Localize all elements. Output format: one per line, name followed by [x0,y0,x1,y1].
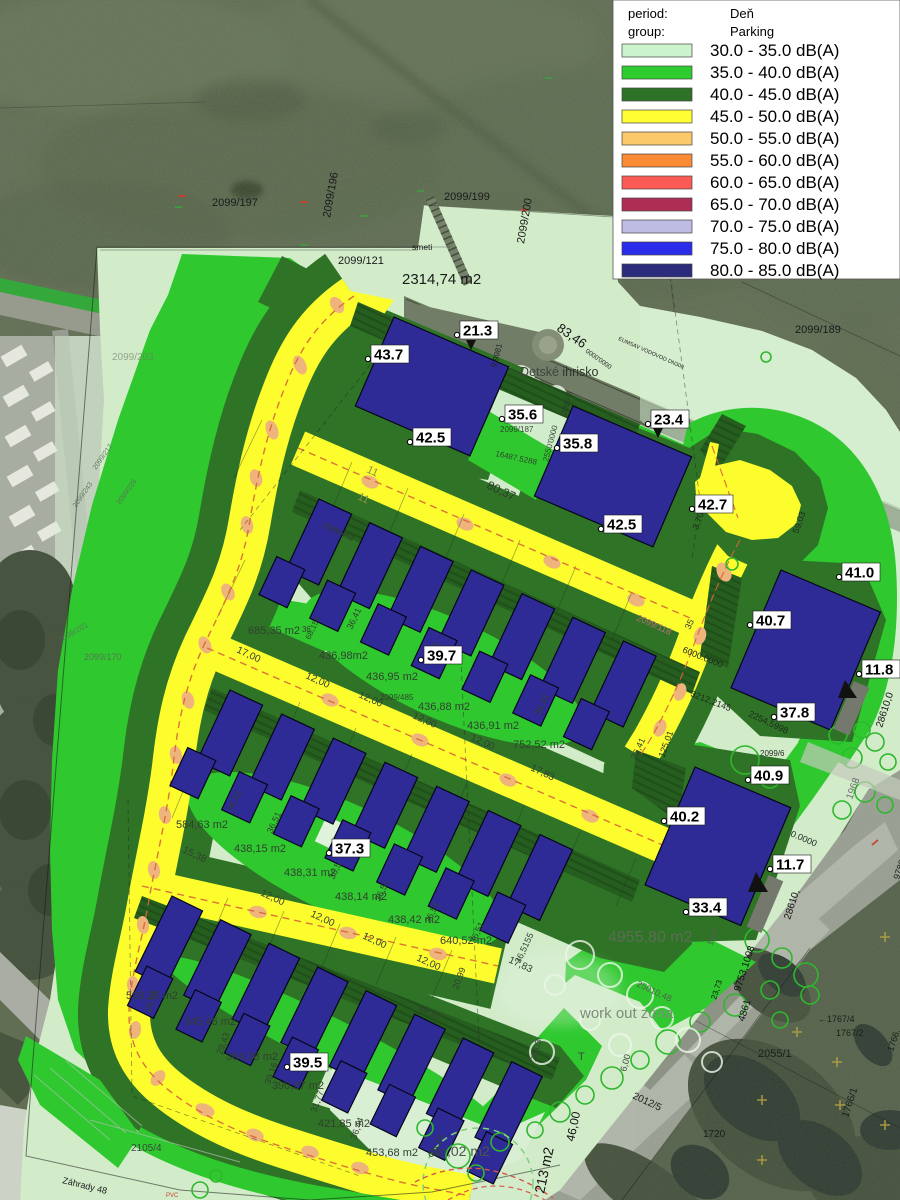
svg-text:640,52 m2: 640,52 m2 [440,935,492,947]
svg-text:21.3: 21.3 [463,323,492,340]
svg-text:50.0 - 55.0 dB(A): 50.0 - 55.0 dB(A) [710,129,839,148]
svg-text:438,15 m2: 438,15 m2 [234,843,286,855]
svg-text:,02 m2: ,02 m2 [447,1143,490,1159]
svg-text:584,63 m2: 584,63 m2 [176,819,228,831]
svg-text:37.3: 37.3 [335,841,364,858]
svg-text:←1767/4: ←1767/4 [818,1014,855,1024]
svg-text:33.4: 33.4 [692,900,722,917]
svg-text:1767/2: 1767/2 [836,1028,864,1038]
svg-text:2099/6: 2099/6 [760,749,785,758]
svg-text:80.0 - 85.0 dB(A): 80.0 - 85.0 dB(A) [710,261,839,280]
svg-text:345,46 m2: 345,46 m2 [184,1016,236,1028]
svg-text:39.7: 39.7 [427,648,456,665]
svg-text:40.2: 40.2 [670,809,699,826]
svg-text:T: T [578,1051,585,1063]
svg-text:60.0 - 65.0 dB(A): 60.0 - 65.0 dB(A) [710,173,839,192]
svg-text:2099/203: 2099/203 [112,352,154,363]
svg-text:2099/189: 2099/189 [795,324,841,336]
svg-text:40.9: 40.9 [754,768,783,785]
svg-text:2099/485: 2099/485 [380,693,414,702]
svg-text:436,98m2: 436,98m2 [319,650,368,662]
svg-text:752,52 m2: 752,52 m2 [513,739,565,751]
svg-text:75.0 - 80.0 dB(A): 75.0 - 80.0 dB(A) [710,239,839,258]
svg-text:11.8: 11.8 [865,662,893,679]
svg-text:group:: group: [628,24,665,39]
svg-text:2105/4: 2105/4 [131,1143,162,1154]
svg-text:2099/187: 2099/187 [500,425,534,434]
svg-text:2055/1: 2055/1 [758,1048,792,1060]
svg-text:41.0: 41.0 [845,565,874,582]
svg-text:period:: period: [628,6,668,21]
svg-text:2099/170: 2099/170 [84,652,122,662]
svg-text:436,95 m2: 436,95 m2 [366,671,418,683]
svg-text:35.6: 35.6 [508,407,537,424]
svg-text:40.0 - 45.0 dB(A): 40.0 - 45.0 dB(A) [710,85,839,104]
svg-text:65.0 - 70.0 dB(A): 65.0 - 70.0 dB(A) [710,195,839,214]
svg-text:45.0 - 50.0 dB(A): 45.0 - 50.0 dB(A) [710,107,839,126]
svg-text:40.7: 40.7 [756,613,785,630]
svg-text:35.8: 35.8 [563,436,592,453]
svg-text:39.5: 39.5 [293,1055,322,1072]
svg-text:11.7: 11.7 [776,857,804,874]
svg-text:23.4: 23.4 [654,412,684,429]
svg-text:Parking: Parking [730,24,774,39]
svg-text:43.7: 43.7 [374,347,403,364]
svg-text:436,88 m2: 436,88 m2 [418,701,470,713]
svg-text:Deň: Deň [730,6,754,21]
svg-text:70.0 - 75.0 dB(A): 70.0 - 75.0 dB(A) [710,217,839,236]
svg-text:42.5: 42.5 [607,517,636,534]
svg-text:2099/121: 2099/121 [338,255,384,267]
svg-text:1720: 1720 [703,1129,726,1140]
svg-text:2099/197: 2099/197 [212,197,258,209]
svg-text:4955,80 m2: 4955,80 m2 [608,929,693,946]
svg-text:453,68 m2: 453,68 m2 [366,1147,418,1159]
svg-text:30.0 - 35.0 dB(A): 30.0 - 35.0 dB(A) [710,41,839,60]
svg-text:work out zóna: work out zóna [579,1005,674,1022]
svg-text:42.7: 42.7 [698,497,727,514]
svg-text:smeti: smeti [412,242,432,252]
svg-text:PVC: PVC [166,1193,179,1199]
svg-text:37.8: 37.8 [780,705,809,722]
svg-text:2099/199: 2099/199 [444,191,490,203]
svg-text:2314,74 m2: 2314,74 m2 [402,271,481,288]
svg-text:436,91 m2: 436,91 m2 [467,720,519,732]
svg-text:42.5: 42.5 [416,430,445,447]
svg-text:55.0 - 60.0 dB(A): 55.0 - 60.0 dB(A) [710,151,839,170]
svg-text:35.0 - 40.0 dB(A): 35.0 - 40.0 dB(A) [710,63,839,82]
svg-text:Detské ihrisko: Detské ihrisko [520,365,599,379]
